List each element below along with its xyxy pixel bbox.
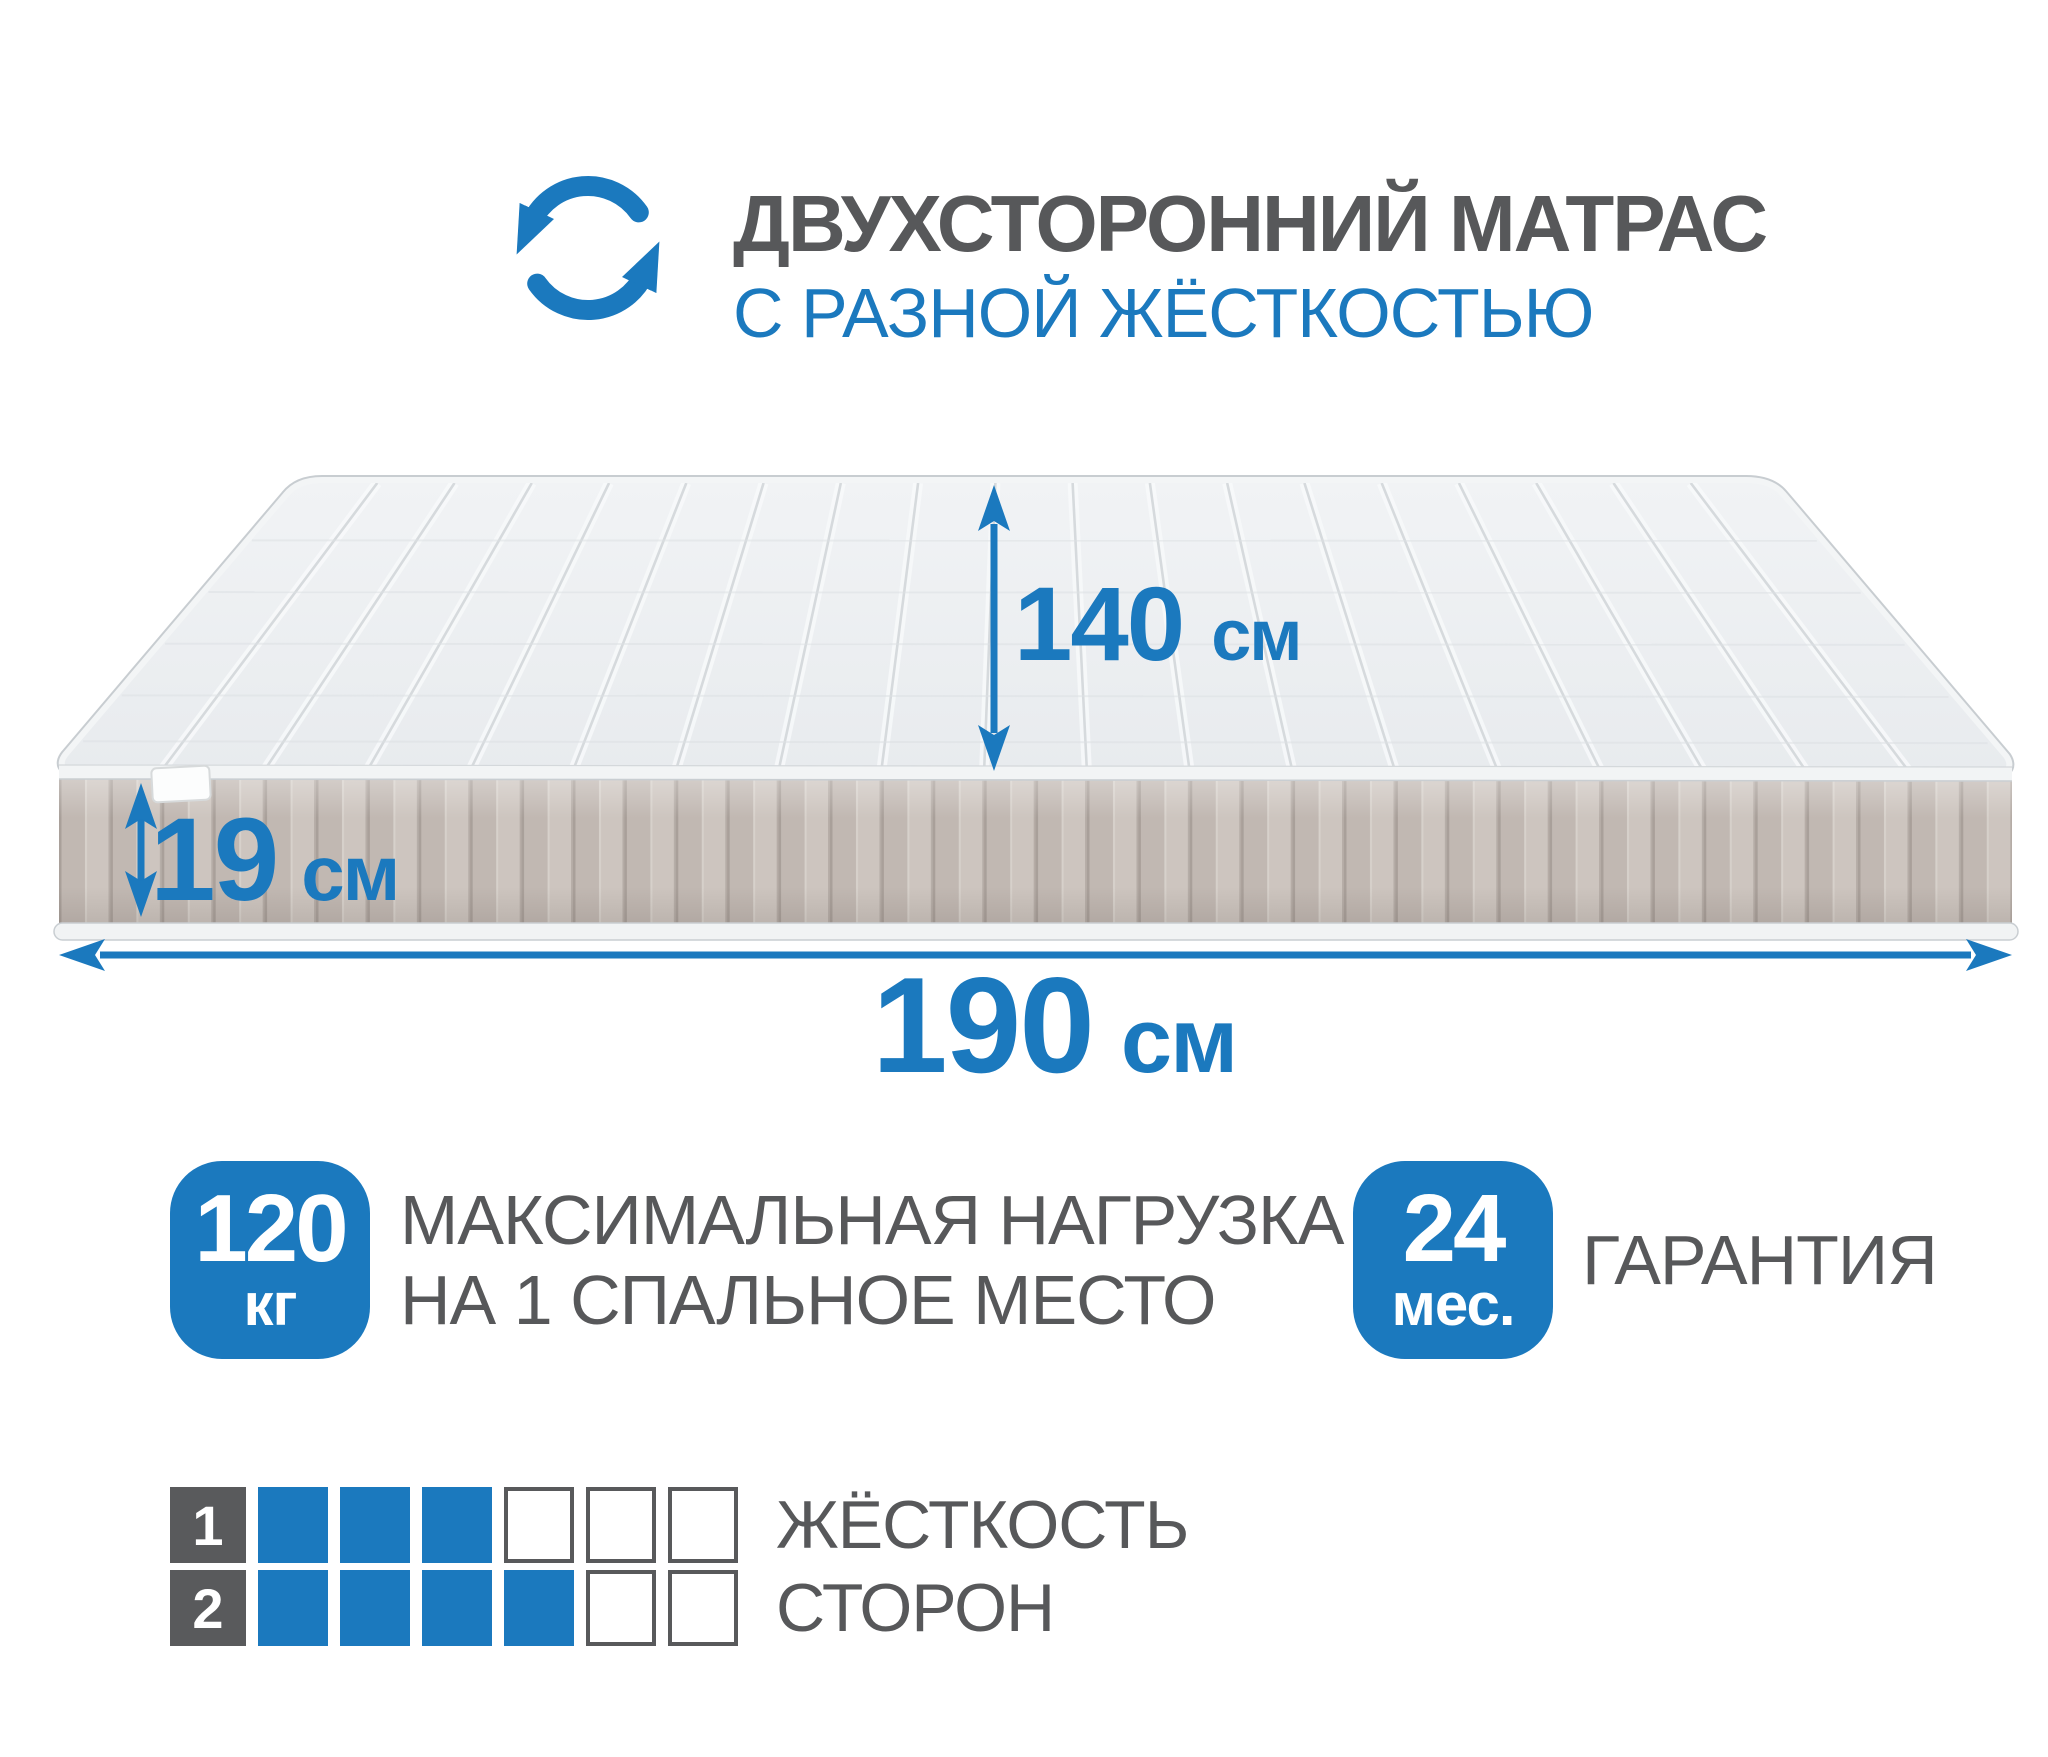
firmness-scale-title-line1: ЖЁСТКОСТЬ — [776, 1487, 1188, 1563]
firmness-cell-filled — [340, 1570, 410, 1646]
mattress-bottom-piping — [54, 923, 2018, 940]
rotate-arrows-icon — [508, 168, 668, 328]
header: ДВУХСТОРОННИЙ МАТРАС С РАЗНОЙ ЖЁСТКОСТЬЮ — [733, 184, 1766, 348]
firmness-cell-empty — [504, 1487, 574, 1563]
firmness-cell-filled — [504, 1570, 574, 1646]
max-load-unit: кг — [243, 1275, 296, 1335]
firmness-cell-filled — [422, 1487, 492, 1563]
firmness-row: 2 — [170, 1570, 750, 1646]
firmness-row-side-number: 1 — [170, 1487, 246, 1563]
firmness-cell-filled — [258, 1570, 328, 1646]
max-load-badge: 120 кг — [170, 1161, 370, 1359]
firmness-cell-empty — [586, 1570, 656, 1646]
warranty-badge: 24 мес. — [1353, 1161, 1553, 1359]
firmness-cell-empty — [668, 1570, 738, 1646]
firmness-cell-empty — [586, 1487, 656, 1563]
mattress-illustration: 140см 19см 190см — [0, 420, 2048, 1120]
max-load-label-line2: НА 1 СПАЛЬНОЕ МЕСТО — [400, 1260, 1343, 1340]
warranty-unit: мес. — [1391, 1275, 1514, 1335]
max-load-label-line1: МАКСИМАЛЬНАЯ НАГРУЗКА — [400, 1180, 1343, 1260]
firmness-cell-filled — [340, 1487, 410, 1563]
firmness-scale-title-line2: СТОРОН — [776, 1570, 1054, 1646]
max-load-value: 120 — [194, 1185, 345, 1273]
length-dimension-label: 190см — [872, 949, 1236, 1101]
rotate-arc-bottom — [537, 274, 644, 310]
firmness-row-side-number: 2 — [170, 1570, 246, 1646]
page-title: ДВУХСТОРОННИЙ МАТРАС — [733, 184, 1766, 264]
mattress-front-piping — [59, 765, 2012, 781]
firmness-scale: 12 — [170, 1487, 750, 1653]
mattress-infographic: ДВУХСТОРОННИЙ МАТРАС С РАЗНОЙ ЖЁСТКОСТЬЮ — [0, 0, 2048, 1757]
firmness-cell-filled — [422, 1570, 492, 1646]
warranty-value: 24 — [1403, 1185, 1504, 1273]
warranty-label: ГАРАНТИЯ — [1582, 1161, 1937, 1359]
firmness-cell-filled — [258, 1487, 328, 1563]
firmness-cell-empty — [668, 1487, 738, 1563]
page-subtitle: С РАЗНОЙ ЖЁСТКОСТЬЮ — [733, 278, 1766, 348]
max-load-label: МАКСИМАЛЬНАЯ НАГРУЗКА НА 1 СПАЛЬНОЕ МЕСТ… — [400, 1161, 1343, 1359]
firmness-row: 1 — [170, 1487, 750, 1563]
rotate-arc-top — [532, 186, 639, 222]
